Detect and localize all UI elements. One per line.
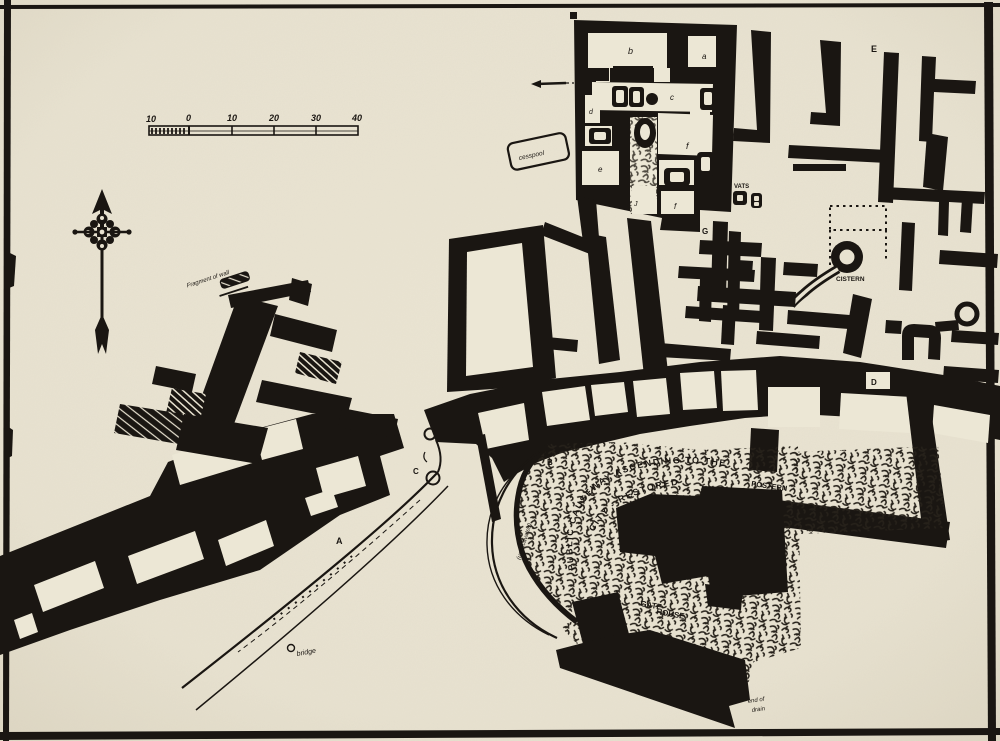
svg-text:e: e: [598, 165, 603, 174]
svg-text:E: E: [871, 44, 877, 54]
svg-text:30: 30: [311, 113, 321, 123]
svg-text:a: a: [702, 52, 707, 61]
svg-text:10: 10: [146, 114, 156, 124]
svg-text:D: D: [871, 378, 877, 387]
svg-text:b: b: [628, 46, 633, 56]
svg-text:40: 40: [351, 113, 362, 123]
svg-text:CISTERN: CISTERN: [836, 276, 865, 283]
svg-text:B: B: [547, 458, 553, 467]
svg-text:20: 20: [268, 113, 279, 123]
svg-text:H: H: [471, 383, 477, 392]
svg-text:C: C: [413, 467, 419, 476]
svg-text:F: F: [712, 350, 717, 359]
svg-text:A: A: [336, 536, 343, 546]
svg-text:10: 10: [227, 113, 237, 123]
svg-text:0: 0: [186, 113, 191, 123]
svg-text:J: J: [633, 201, 638, 208]
svg-text:VATS: VATS: [734, 184, 749, 190]
svg-text:G: G: [702, 227, 708, 236]
svg-text:c: c: [670, 93, 674, 102]
